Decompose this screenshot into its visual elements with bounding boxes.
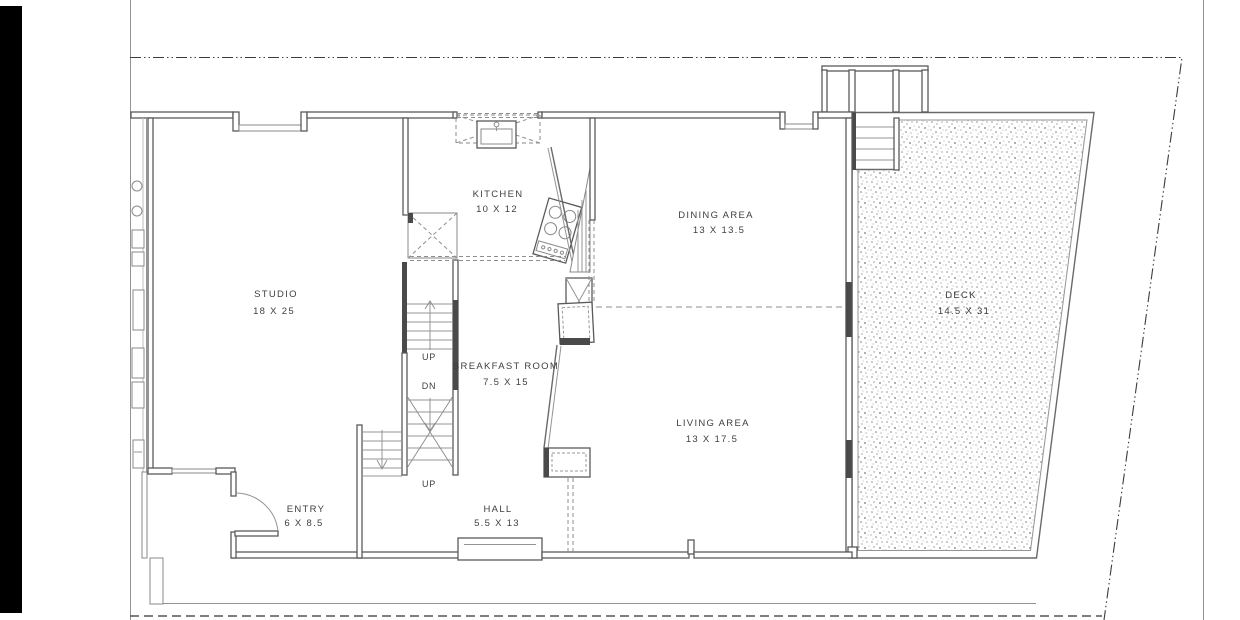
room-name: DECK [945, 290, 977, 301]
zone-separators [410, 257, 845, 553]
room-label-hall: HALL 5.5 X 13 [474, 504, 520, 529]
kitchen-counter-dishwasher [408, 213, 457, 258]
stair-label-dn: DN [422, 381, 437, 391]
site-lines [130, 604, 1102, 617]
staircase [357, 260, 458, 558]
room-dimensions: 10 X 12 [476, 204, 518, 215]
refrigerator [558, 302, 594, 344]
kitchen-sink [477, 121, 516, 148]
stair-label-up-lower: UP [422, 479, 436, 489]
room-dimensions: 18 X 25 [253, 306, 295, 317]
room-label-kitchen: KITCHEN 10 X 12 [473, 189, 524, 215]
dining-partition-wall [589, 118, 595, 303]
room-dimensions: 6 X 8.5 [284, 518, 323, 529]
room-label-breakfast-room: BREAKFAST ROOM 7.5 X 15 [453, 361, 559, 388]
room-name: BREAKFAST ROOM [453, 361, 559, 372]
room-label-living-area: LIVING AREA 13 X 17.5 [676, 418, 749, 445]
room-label-dining-area: DINING AREA 13 X 13.5 [678, 210, 754, 236]
room-name: STUDIO [254, 289, 298, 300]
stair-label-up-upper: UP [422, 352, 436, 362]
room-name: HALL [484, 504, 513, 515]
room-name: DINING AREA [678, 210, 754, 221]
floor-plan-canvas: STUDIO 18 X 25 KITCHEN 10 X 12 DINING AR… [0, 0, 1240, 620]
deck-area [840, 105, 1100, 565]
entry-walls [231, 472, 236, 558]
upper-landing [822, 66, 928, 112]
room-label-studio: STUDIO 18 X 25 [253, 289, 298, 317]
room-dimensions: 14.5 X 31 [938, 306, 990, 317]
film-edge-strip [0, 6, 22, 613]
breakfast-angled-wall [544, 338, 590, 477]
right-exterior-wall [846, 118, 858, 558]
room-dimensions: 13 X 13.5 [693, 225, 745, 236]
floor-plan-page: STUDIO 18 X 25 KITCHEN 10 X 12 DINING AR… [0, 0, 1240, 620]
room-dimensions: 7.5 X 15 [483, 377, 529, 388]
bottom-exterior-wall [232, 538, 852, 560]
room-name: LIVING AREA [676, 418, 749, 429]
room-dimensions: 13 X 17.5 [686, 434, 738, 445]
room-name: ENTRY [287, 504, 326, 515]
room-name: KITCHEN [473, 189, 524, 200]
room-dimensions: 5.5 X 13 [474, 518, 520, 529]
entry-door [235, 493, 278, 536]
room-label-entry: ENTRY 6 X 8.5 [284, 504, 325, 529]
